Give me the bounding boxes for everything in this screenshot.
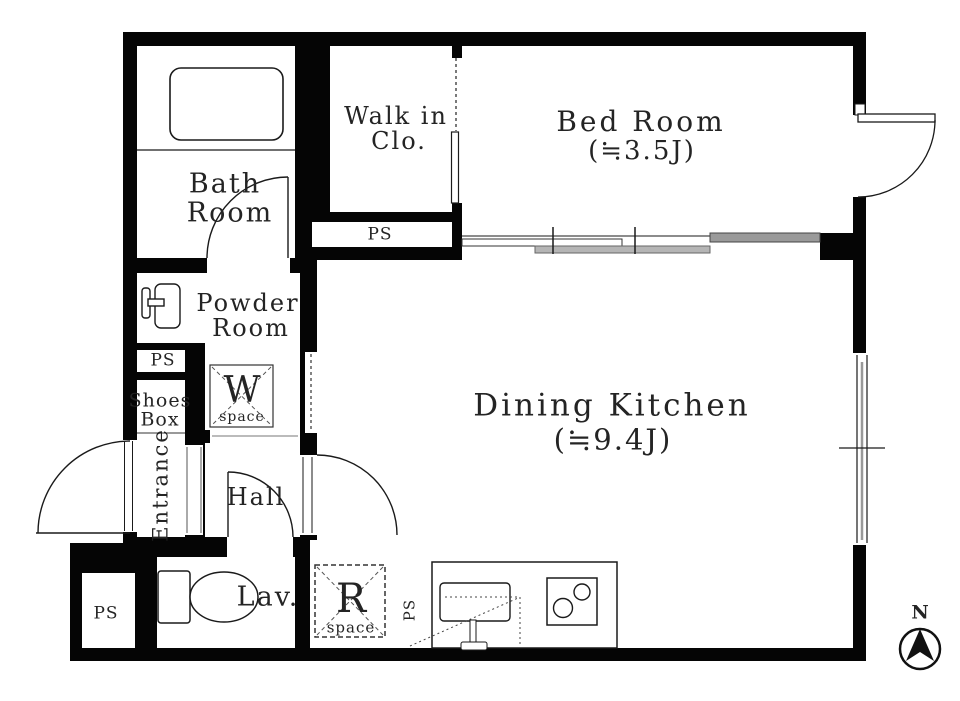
closet-opening-marker	[452, 58, 459, 203]
room-label-hall: Hall	[227, 485, 286, 509]
shoes-box-label-2: Box	[140, 411, 179, 430]
bathtub-icon	[137, 68, 295, 150]
room-label-lavatory: Lav.	[237, 584, 300, 611]
floor-plan: Bath Room Walk in Clo. Bed Room (≒3.5J) …	[0, 0, 960, 701]
pipe-space-label-bottom-left: PS	[93, 606, 118, 623]
room-label-bedroom: Bed Room	[556, 108, 725, 136]
washer-space-word: space	[219, 410, 265, 424]
fridge-space-letter: R	[336, 579, 366, 619]
fridge-space-word: space	[327, 621, 376, 636]
room-size-dining-kitchen: (≒9.4J)	[554, 426, 673, 455]
washbasin-icon	[142, 284, 180, 328]
hall-kitchen-door-arc	[303, 455, 397, 535]
stove-icon	[547, 578, 597, 625]
room-label-walk-in-closet-2: Clo.	[371, 129, 427, 153]
bedroom-sliding-door	[462, 227, 820, 254]
kitchen-window	[839, 355, 885, 543]
room-size-bedroom: (≒3.5J)	[588, 138, 696, 164]
washer-space-letter: W	[223, 373, 260, 409]
entrance-step-lines	[187, 447, 201, 533]
compass-north-label: N	[911, 604, 928, 623]
pipe-space-label-left: PS	[150, 353, 175, 370]
room-label-dining-kitchen: Dining Kitchen	[473, 391, 750, 422]
room-label-walk-in-closet-1: Walk in	[344, 104, 448, 128]
compass-north-icon	[900, 629, 940, 669]
kitchen-counter	[410, 562, 617, 650]
room-label-powder-2: Room	[212, 316, 290, 340]
pipe-space-label-kitchen: PS	[403, 599, 418, 621]
entrance-door-arc	[36, 441, 133, 533]
bedroom-exterior-door-arc	[855, 104, 935, 197]
pipe-space-label-under-closet: PS	[367, 227, 392, 244]
fixtures-layer	[0, 0, 960, 701]
room-label-bath-2: Room	[187, 200, 273, 227]
room-label-entrance: Entrance	[151, 428, 172, 542]
room-label-powder-1: Powder	[196, 291, 299, 315]
room-label-bath-1: Bath	[189, 171, 261, 198]
